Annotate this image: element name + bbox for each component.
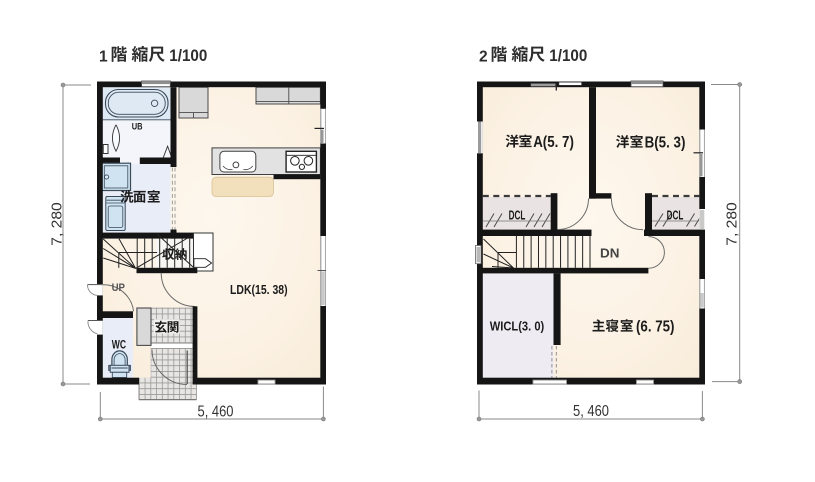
svg-text:(6. 75): (6. 75) (636, 319, 675, 336)
svg-text:B(5. 3): B(5. 3) (645, 135, 686, 152)
svg-text:7, 280: 7, 280 (723, 202, 740, 246)
svg-text:UB: UB (132, 122, 143, 133)
svg-text:1/100: 1/100 (549, 47, 587, 65)
svg-text:7, 280: 7, 280 (49, 202, 66, 246)
svg-text:1: 1 (99, 48, 108, 65)
svg-text:1/100: 1/100 (169, 47, 207, 65)
svg-text:5, 460: 5, 460 (573, 403, 609, 420)
svg-text:WC: WC (112, 340, 126, 352)
svg-text:DN: DN (600, 247, 619, 261)
svg-text:2: 2 (479, 48, 488, 65)
svg-text:A(5. 7): A(5. 7) (533, 134, 574, 151)
svg-text:WICL(3. 0): WICL(3. 0) (490, 318, 545, 333)
svg-text:5, 460: 5, 460 (198, 403, 234, 420)
svg-text:UP: UP (112, 282, 125, 294)
svg-text:DCL: DCL (667, 208, 684, 223)
svg-text:LDK(15. 38): LDK(15. 38) (230, 282, 288, 297)
svg-text:DCL: DCL (509, 207, 526, 222)
